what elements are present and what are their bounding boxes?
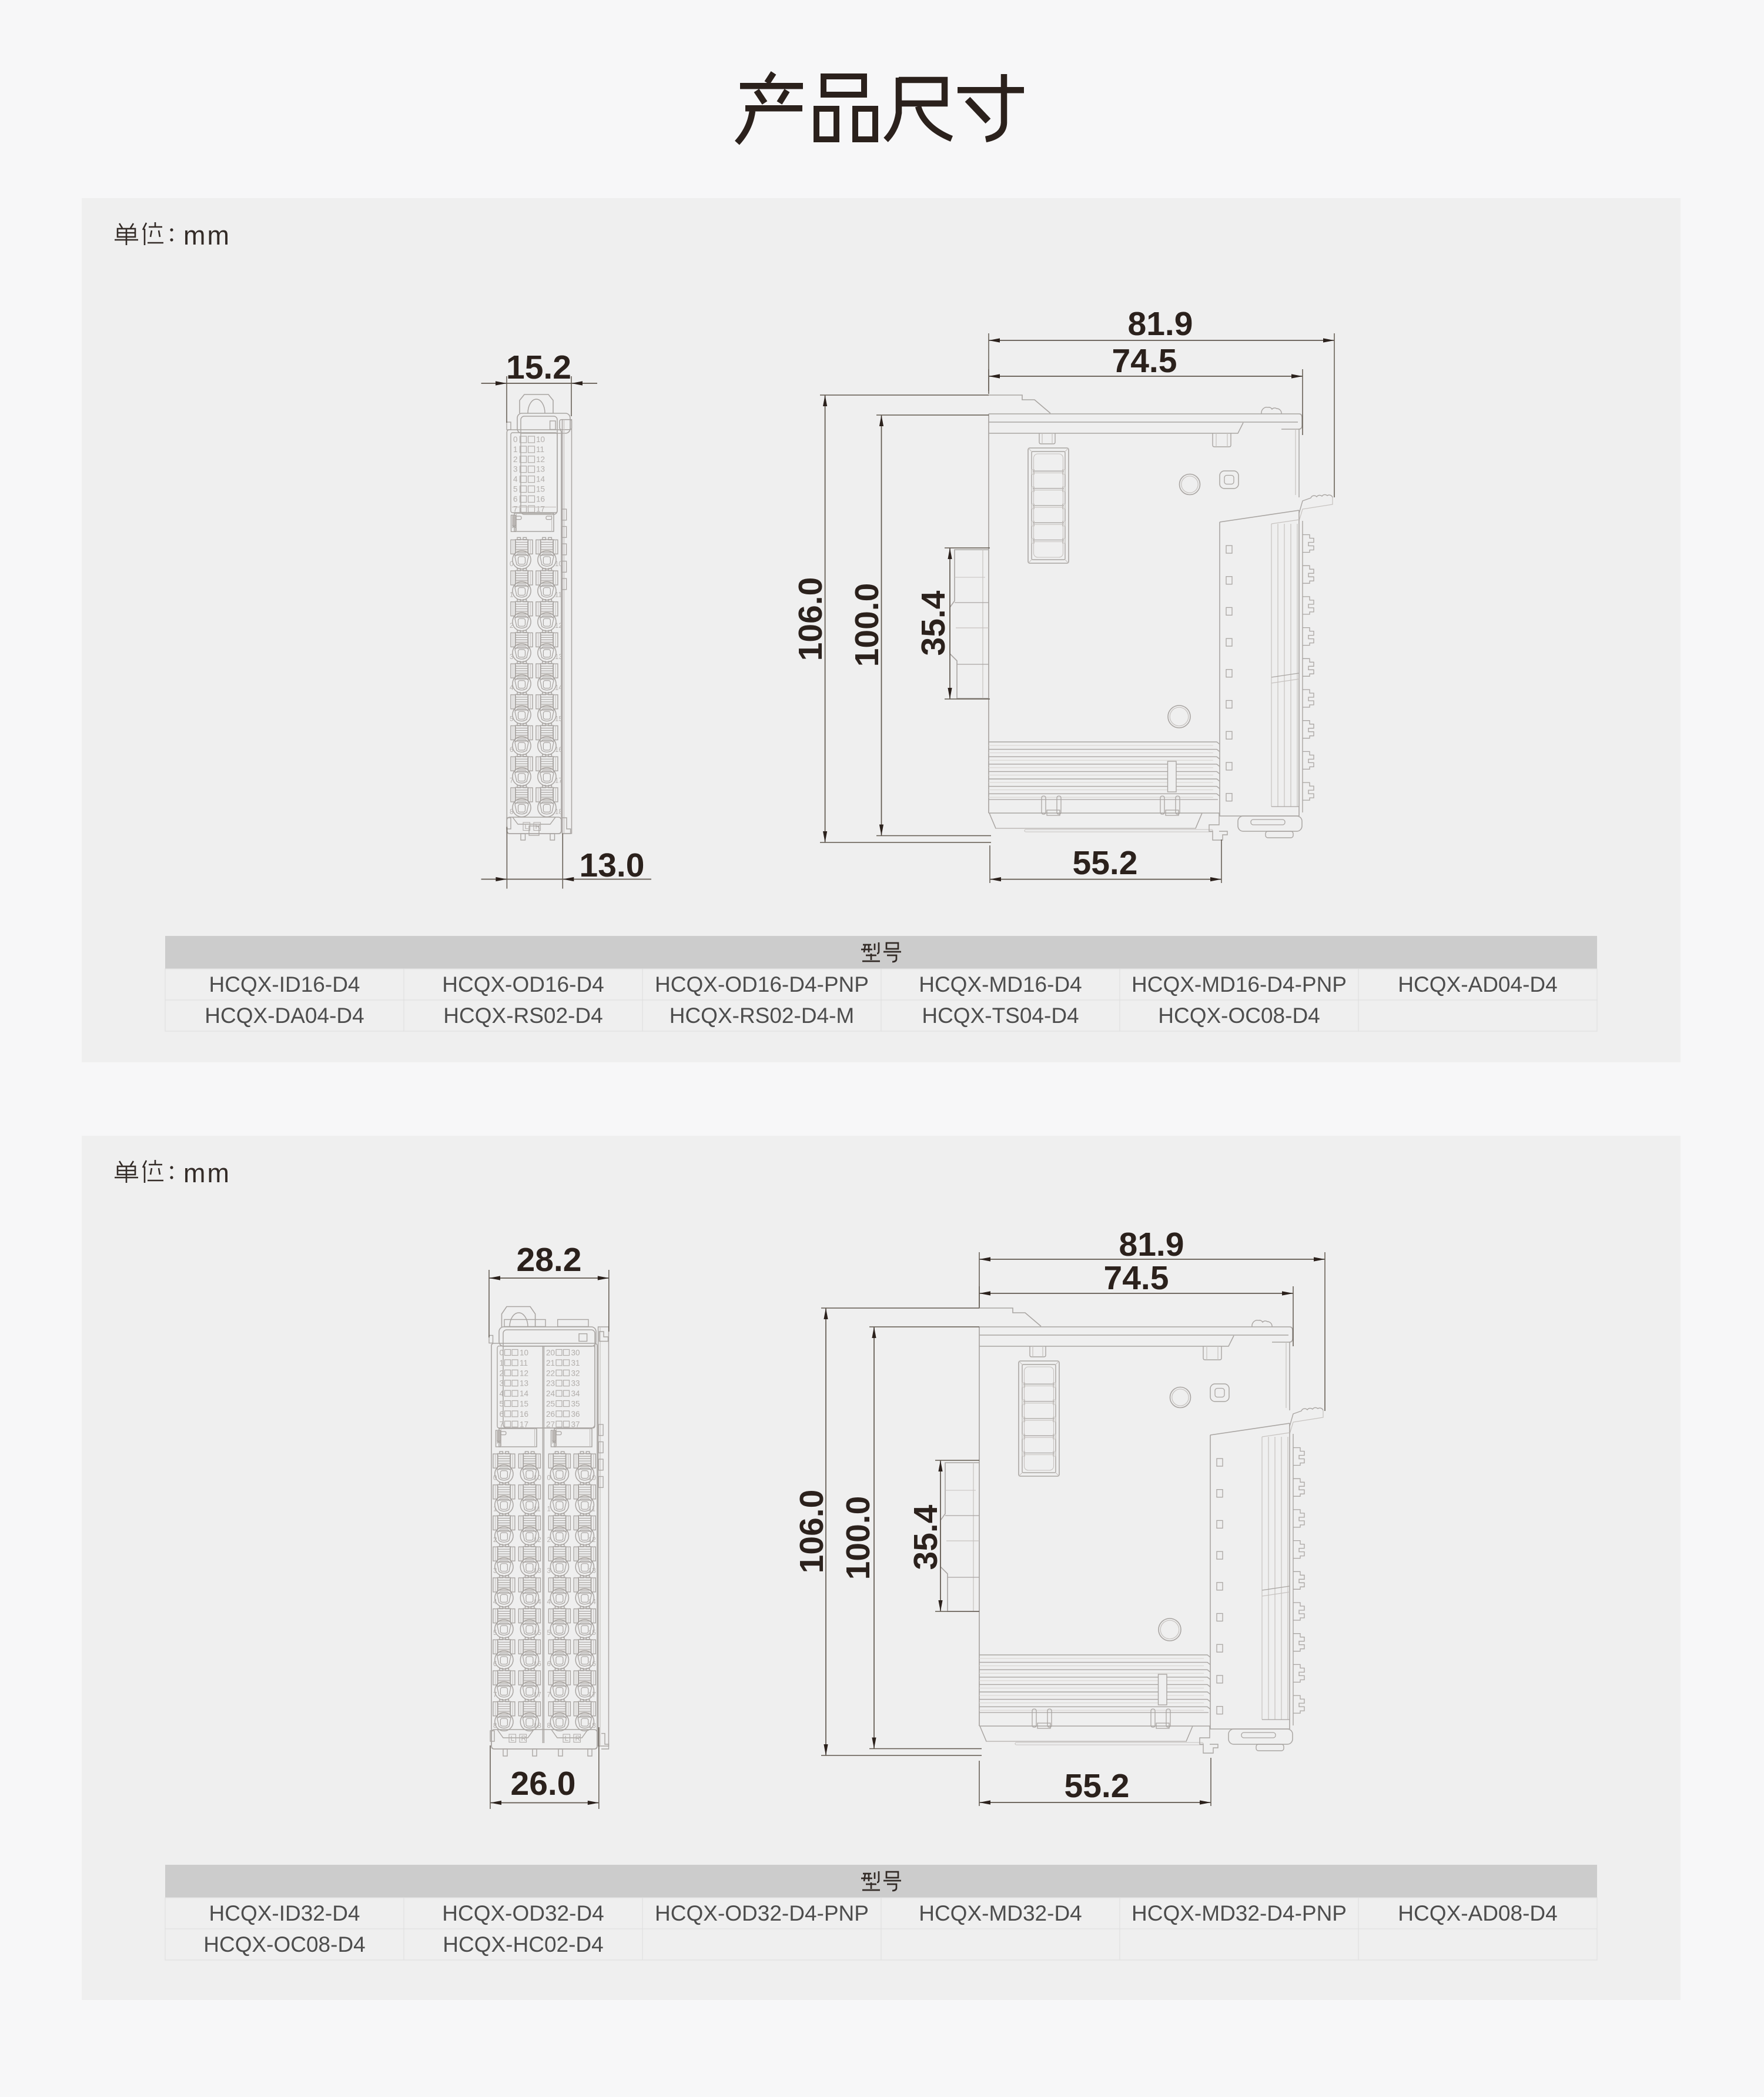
svg-text:0: 0 bbox=[513, 435, 518, 444]
svg-text:11: 11 bbox=[588, 1506, 595, 1513]
svg-text:7: 7 bbox=[513, 504, 518, 513]
svg-text:18: 18 bbox=[534, 1723, 541, 1730]
svg-text:8: 8 bbox=[493, 1723, 497, 1730]
svg-text:1: 1 bbox=[513, 445, 518, 454]
svg-text:13: 13 bbox=[520, 1379, 528, 1388]
svg-text:3: 3 bbox=[513, 465, 518, 474]
svg-text:HCQX-OC08-D4: HCQX-OC08-D4 bbox=[203, 1932, 366, 1956]
svg-text:5: 5 bbox=[493, 1630, 497, 1637]
svg-text:14: 14 bbox=[520, 1389, 529, 1398]
svg-text:18: 18 bbox=[588, 1723, 596, 1730]
svg-text:4: 4 bbox=[513, 475, 518, 484]
svg-text:HCQX-AD08-D4: HCQX-AD08-D4 bbox=[1398, 1901, 1557, 1925]
svg-text:3: 3 bbox=[493, 1568, 497, 1575]
svg-text:12: 12 bbox=[536, 455, 545, 464]
svg-text:12: 12 bbox=[520, 1369, 528, 1377]
svg-text:7: 7 bbox=[510, 778, 513, 785]
svg-text:HCQX-MD32-D4-PNP: HCQX-MD32-D4-PNP bbox=[1132, 1901, 1347, 1925]
svg-text:16: 16 bbox=[520, 1410, 528, 1419]
svg-text:10: 10 bbox=[555, 561, 563, 568]
svg-text:8: 8 bbox=[510, 808, 513, 815]
svg-text:22: 22 bbox=[546, 1369, 555, 1377]
svg-text:HCQX-OD16-D4-PNP: HCQX-OD16-D4-PNP bbox=[655, 972, 869, 996]
svg-text:16: 16 bbox=[555, 747, 563, 754]
svg-text:10: 10 bbox=[534, 1475, 541, 1482]
svg-text:5: 5 bbox=[513, 485, 518, 494]
svg-text:10: 10 bbox=[536, 435, 545, 444]
svg-text:L: L bbox=[565, 1734, 569, 1743]
svg-text:HCQX-MD16-D4: HCQX-MD16-D4 bbox=[919, 972, 1082, 996]
svg-text:23: 23 bbox=[546, 1379, 555, 1388]
svg-text:7: 7 bbox=[500, 1420, 504, 1429]
svg-text:15: 15 bbox=[534, 1630, 541, 1637]
svg-text:HCQX-OC08-D4: HCQX-OC08-D4 bbox=[1158, 1004, 1320, 1028]
svg-text:R: R bbox=[521, 1734, 527, 1743]
svg-text:HCQX-OD32-D4: HCQX-OD32-D4 bbox=[442, 1901, 604, 1925]
svg-text:HCQX-MD16-D4-PNP: HCQX-MD16-D4-PNP bbox=[1132, 972, 1347, 996]
svg-text:14: 14 bbox=[534, 1598, 541, 1606]
svg-text:20: 20 bbox=[546, 1349, 555, 1357]
svg-text:R: R bbox=[535, 822, 541, 831]
svg-text:HCQX-RS02-D4: HCQX-RS02-D4 bbox=[443, 1004, 602, 1028]
svg-text:6: 6 bbox=[500, 1410, 504, 1419]
svg-text:24: 24 bbox=[546, 1389, 555, 1398]
svg-text:55.2: 55.2 bbox=[1073, 844, 1138, 882]
svg-text:16: 16 bbox=[534, 1661, 541, 1668]
svg-text:55.2: 55.2 bbox=[1065, 1767, 1130, 1805]
svg-text:11: 11 bbox=[534, 1506, 541, 1513]
svg-text:12: 12 bbox=[555, 623, 563, 630]
svg-text:13: 13 bbox=[534, 1568, 541, 1575]
svg-text:0: 0 bbox=[500, 1349, 504, 1357]
svg-text:6: 6 bbox=[513, 494, 518, 503]
svg-text:R: R bbox=[575, 1734, 581, 1743]
svg-text:17: 17 bbox=[555, 778, 563, 785]
svg-text:13: 13 bbox=[588, 1568, 596, 1575]
svg-text:6: 6 bbox=[547, 1661, 551, 1668]
svg-text:mm: mm bbox=[183, 1158, 231, 1188]
svg-text:30: 30 bbox=[571, 1349, 580, 1357]
svg-text:15: 15 bbox=[588, 1630, 596, 1637]
svg-text:14: 14 bbox=[536, 475, 545, 484]
svg-text:8: 8 bbox=[547, 1723, 551, 1730]
svg-text:17: 17 bbox=[536, 504, 545, 513]
svg-text:HCQX-ID32-D4: HCQX-ID32-D4 bbox=[209, 1901, 360, 1925]
svg-text:HCQX-OD32-D4-PNP: HCQX-OD32-D4-PNP bbox=[655, 1901, 869, 1925]
svg-text:100.0: 100.0 bbox=[839, 1496, 877, 1580]
svg-text:HCQX-ID16-D4: HCQX-ID16-D4 bbox=[209, 972, 360, 996]
svg-text:1: 1 bbox=[500, 1359, 504, 1367]
svg-text:17: 17 bbox=[588, 1692, 596, 1699]
svg-text:4: 4 bbox=[547, 1598, 551, 1606]
svg-text:10: 10 bbox=[520, 1349, 528, 1357]
svg-text:0: 0 bbox=[510, 561, 513, 568]
svg-text:1: 1 bbox=[493, 1506, 497, 1513]
svg-text:1: 1 bbox=[510, 592, 513, 599]
svg-text:81.9: 81.9 bbox=[1119, 1226, 1184, 1263]
svg-text:L: L bbox=[525, 822, 529, 831]
svg-text:106.0: 106.0 bbox=[792, 577, 829, 661]
svg-text:15: 15 bbox=[536, 485, 545, 494]
svg-text:14: 14 bbox=[588, 1598, 596, 1606]
svg-text:HCQX-OD16-D4: HCQX-OD16-D4 bbox=[442, 972, 604, 996]
svg-text:2: 2 bbox=[510, 623, 513, 630]
svg-text:13: 13 bbox=[536, 465, 545, 474]
svg-text:HCQX-DA04-D4: HCQX-DA04-D4 bbox=[205, 1004, 364, 1028]
svg-text:13.0: 13.0 bbox=[580, 847, 645, 884]
svg-text:4: 4 bbox=[493, 1598, 497, 1606]
svg-text:11: 11 bbox=[536, 445, 544, 454]
svg-text:26: 26 bbox=[546, 1410, 555, 1419]
svg-text:HCQX-HC02-D4: HCQX-HC02-D4 bbox=[443, 1932, 603, 1956]
svg-text:11: 11 bbox=[520, 1359, 528, 1367]
svg-text:7: 7 bbox=[547, 1692, 551, 1699]
svg-text:17: 17 bbox=[534, 1692, 541, 1699]
svg-text:25: 25 bbox=[546, 1400, 555, 1409]
svg-text:15: 15 bbox=[520, 1400, 528, 1409]
svg-text:4: 4 bbox=[500, 1389, 504, 1398]
svg-text:2: 2 bbox=[500, 1369, 504, 1377]
svg-text:26.0: 26.0 bbox=[511, 1765, 576, 1802]
svg-text:13: 13 bbox=[555, 654, 563, 661]
svg-text:HCQX-RS02-D4-M: HCQX-RS02-D4-M bbox=[670, 1004, 855, 1028]
svg-text:14: 14 bbox=[555, 685, 563, 692]
svg-text:2: 2 bbox=[547, 1537, 551, 1544]
svg-text:2: 2 bbox=[493, 1537, 497, 1544]
svg-text:12: 12 bbox=[588, 1537, 596, 1544]
svg-text:11: 11 bbox=[555, 592, 562, 599]
svg-text:3: 3 bbox=[510, 654, 513, 661]
svg-text:28.2: 28.2 bbox=[517, 1241, 582, 1279]
svg-text:5: 5 bbox=[500, 1400, 504, 1409]
svg-text:3: 3 bbox=[547, 1568, 551, 1575]
svg-text:mm: mm bbox=[183, 220, 231, 250]
svg-text:18: 18 bbox=[555, 808, 563, 815]
svg-text:81.9: 81.9 bbox=[1128, 305, 1193, 343]
svg-text:74.5: 74.5 bbox=[1112, 342, 1177, 380]
svg-text:0: 0 bbox=[547, 1475, 551, 1482]
svg-text:74.5: 74.5 bbox=[1104, 1259, 1169, 1297]
svg-text:37: 37 bbox=[571, 1420, 580, 1429]
svg-text:35.4: 35.4 bbox=[907, 1504, 945, 1570]
svg-text:0: 0 bbox=[493, 1475, 497, 1482]
svg-text:31: 31 bbox=[571, 1359, 580, 1367]
svg-text:HCQX-MD32-D4: HCQX-MD32-D4 bbox=[919, 1901, 1082, 1925]
svg-text:12: 12 bbox=[534, 1537, 541, 1544]
svg-text:15.2: 15.2 bbox=[506, 349, 571, 386]
svg-text:HCQX-AD04-D4: HCQX-AD04-D4 bbox=[1398, 972, 1557, 996]
svg-text:27: 27 bbox=[546, 1420, 555, 1429]
svg-text:4: 4 bbox=[510, 685, 514, 692]
svg-text:21: 21 bbox=[546, 1359, 555, 1367]
svg-text:16: 16 bbox=[588, 1661, 596, 1668]
svg-text:2: 2 bbox=[513, 455, 518, 464]
svg-text:1: 1 bbox=[547, 1506, 551, 1513]
svg-text:HCQX-TS04-D4: HCQX-TS04-D4 bbox=[922, 1004, 1079, 1028]
svg-text:6: 6 bbox=[493, 1661, 497, 1668]
svg-text:L: L bbox=[511, 1734, 515, 1743]
svg-text:34: 34 bbox=[571, 1389, 581, 1398]
svg-text:3: 3 bbox=[500, 1379, 504, 1388]
svg-text:7: 7 bbox=[493, 1692, 497, 1699]
svg-text:36: 36 bbox=[571, 1410, 580, 1419]
svg-text:15: 15 bbox=[555, 715, 563, 723]
svg-text:32: 32 bbox=[571, 1369, 580, 1377]
svg-text:5: 5 bbox=[510, 715, 513, 723]
svg-text:16: 16 bbox=[536, 494, 545, 503]
svg-text:17: 17 bbox=[520, 1420, 528, 1429]
svg-text:106.0: 106.0 bbox=[793, 1490, 831, 1574]
svg-text:35.4: 35.4 bbox=[915, 590, 952, 655]
svg-text:100.0: 100.0 bbox=[848, 583, 886, 667]
svg-text:35: 35 bbox=[571, 1400, 580, 1409]
svg-text:10: 10 bbox=[588, 1475, 596, 1482]
svg-text:5: 5 bbox=[547, 1630, 551, 1637]
svg-text:33: 33 bbox=[571, 1379, 580, 1388]
svg-text:6: 6 bbox=[510, 747, 513, 754]
